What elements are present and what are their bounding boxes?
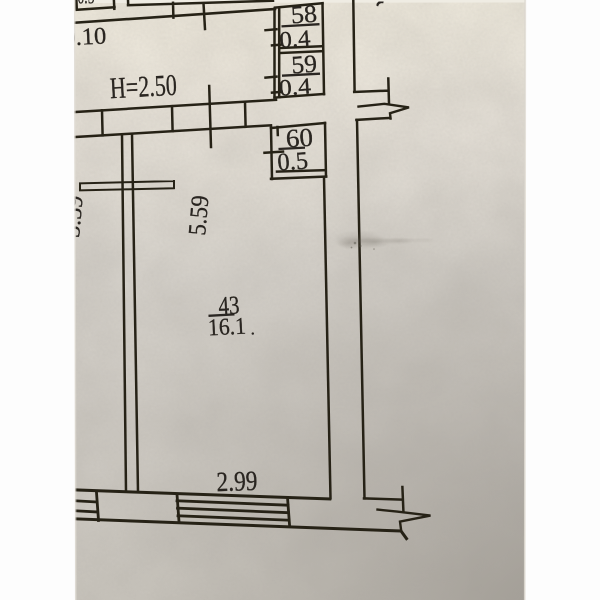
svg-text:0.4: 0.4: [279, 25, 312, 52]
svg-text:5.59: 5.59: [184, 194, 214, 236]
svg-text:0.4: 0.4: [278, 73, 312, 100]
svg-text:2.99: 2.99: [216, 466, 258, 498]
svg-text:H=2.50: H=2.50: [109, 69, 178, 105]
svg-text:0.5: 0.5: [78, 0, 95, 9]
svg-text:16.1: 16.1: [207, 314, 246, 342]
svg-text:0.5: 0.5: [277, 147, 309, 176]
